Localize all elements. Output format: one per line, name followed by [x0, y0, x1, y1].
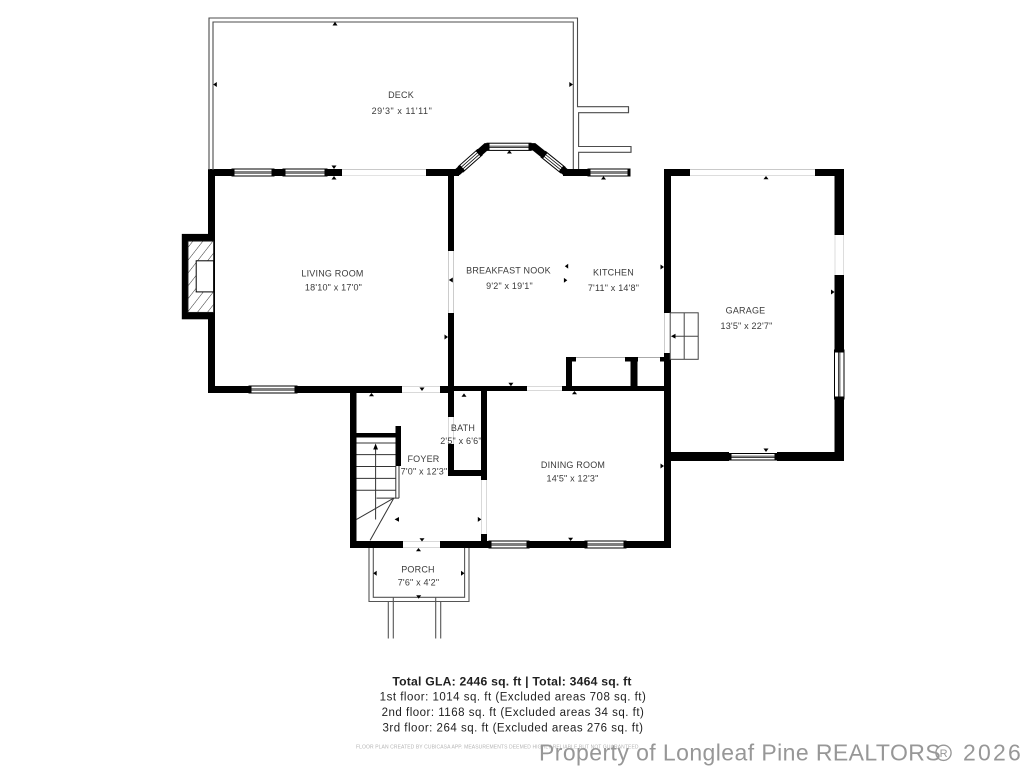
svg-text:18'10" x 17'0": 18'10" x 17'0" [305, 283, 362, 293]
svg-text:29'3" x 11'11": 29'3" x 11'11" [372, 106, 433, 116]
svg-text:3rd floor: 264 sq. ft (Exclude: 3rd floor: 264 sq. ft (Excluded areas 27… [382, 723, 643, 735]
svg-text:2'5" x 6'6": 2'5" x 6'6" [440, 436, 482, 446]
svg-text:7'6" x 4'2": 7'6" x 4'2" [398, 578, 440, 588]
svg-text:LIVING ROOM: LIVING ROOM [301, 269, 363, 279]
svg-text:13'5" x 22'7": 13'5" x 22'7" [721, 321, 773, 331]
svg-text:1st floor: 1014 sq. ft (Exclud: 1st floor: 1014 sq. ft (Excluded areas 7… [380, 692, 647, 704]
svg-text:Total GLA: 2446 sq. ft | Total: Total GLA: 2446 sq. ft | Total: 3464 sq.… [392, 675, 631, 689]
svg-text:DINING ROOM: DINING ROOM [541, 460, 605, 470]
svg-text:FOYER: FOYER [407, 454, 439, 464]
svg-text:KITCHEN: KITCHEN [593, 268, 634, 278]
svg-text:DECK: DECK [388, 90, 414, 100]
svg-text:9'2" x 19'1": 9'2" x 19'1" [486, 281, 533, 291]
svg-text:2nd floor: 1168 sq. ft (Exclud: 2nd floor: 1168 sq. ft (Excluded areas 3… [382, 707, 645, 719]
svg-text:Property of Longleaf Pine REAL: Property of Longleaf Pine REALTORS [539, 740, 941, 766]
svg-text:7'11" x 14'8": 7'11" x 14'8" [588, 283, 639, 293]
svg-text:BREAKFAST NOOK: BREAKFAST NOOK [466, 266, 551, 276]
svg-text:2026: 2026 [963, 740, 1023, 766]
svg-text:GARAGE: GARAGE [726, 306, 766, 316]
svg-text:7'0" x 12'3": 7'0" x 12'3" [401, 467, 448, 477]
svg-text:14'5" x 12'3": 14'5" x 12'3" [547, 474, 599, 484]
svg-text:R: R [940, 748, 948, 760]
svg-text:BATH: BATH [451, 423, 475, 433]
svg-text:PORCH: PORCH [401, 565, 435, 575]
